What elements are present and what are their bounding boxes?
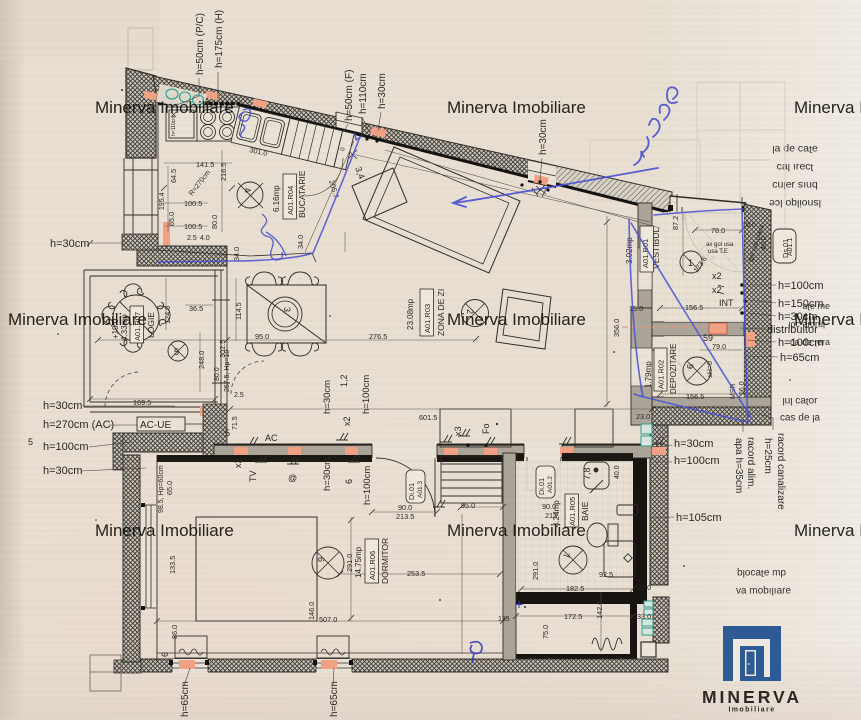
svg-text:23.0: 23.0 (636, 412, 650, 421)
svg-text:Minerva Imobiliare: Minerva Imobiliare (794, 98, 861, 117)
svg-text:169.5: 169.5 (133, 398, 151, 407)
svg-text:601.5: 601.5 (419, 413, 437, 422)
svg-text:6: 6 (344, 479, 354, 484)
svg-text:216.5: 216.5 (219, 163, 228, 181)
svg-text:BAIE: BAIE (580, 501, 590, 521)
svg-text:h=30cm: h=30cm (43, 400, 82, 412)
svg-text:65.0: 65.0 (165, 481, 174, 495)
svg-text:Minerva Imobiliare: Minerva Imobiliare (447, 310, 586, 329)
svg-text:A01.R02: A01.R02 (657, 360, 666, 389)
svg-text:3: 3 (282, 307, 292, 312)
svg-text:h=50cm (P/C): h=50cm (P/C) (195, 13, 206, 75)
svg-text:Minerva Imobiliare: Minerva Imobiliare (794, 521, 861, 540)
svg-text:ax gol usa: ax gol usa (706, 242, 734, 248)
svg-text:A01.2: A01.2 (547, 476, 554, 493)
svg-text:lsnoilqo lce: lsnoilqo lce (769, 197, 821, 209)
svg-text:usa T.E: usa T.E (708, 249, 728, 255)
svg-text:2.5: 2.5 (187, 235, 197, 242)
svg-text:6: 6 (160, 652, 170, 657)
svg-text:Minerva Imobiliare: Minerva Imobiliare (794, 310, 861, 329)
svg-text:5: 5 (28, 437, 33, 447)
svg-text:h=30cm: h=30cm (322, 457, 333, 491)
svg-text:MINERVA: MINERVA (702, 687, 802, 707)
svg-text:BUCATARIE: BUCATARIE (297, 170, 307, 218)
svg-text:Minerva Imobiliare: Minerva Imobiliare (95, 521, 234, 540)
svg-text:racord canalizare: racord canalizare (775, 433, 786, 510)
svg-text:95.0: 95.0 (255, 332, 269, 341)
svg-text:x3: x3 (453, 426, 463, 436)
svg-text:4.0: 4.0 (200, 235, 210, 242)
svg-text:Di.01: Di.01 (537, 478, 546, 495)
svg-text:15.0: 15.0 (629, 304, 643, 313)
svg-text:racord alim.: racord alim. (745, 437, 756, 489)
svg-text:A01.R04: A01.R04 (286, 186, 295, 215)
svg-text:x2: x2 (342, 416, 352, 426)
svg-text:34.0: 34.0 (232, 247, 241, 261)
svg-text:Imobiliare: Imobiliare (728, 707, 775, 714)
svg-text:TV: TV (248, 470, 258, 482)
svg-text:h=110cm: h=110cm (358, 73, 369, 114)
svg-text:276.5: 276.5 (369, 332, 387, 341)
svg-text:A01.R03: A01.R03 (423, 304, 432, 333)
svg-text:h=105cm: h=105cm (676, 512, 722, 524)
svg-text:LOGIE: LOGIE (146, 312, 156, 338)
svg-text:507.0: 507.0 (319, 615, 337, 624)
svg-text:36.5: 36.5 (189, 304, 203, 313)
svg-text:h=100cm: h=100cm (362, 466, 373, 505)
svg-text:6.16mp: 6.16mp (272, 185, 281, 212)
svg-text:ZONA DE ZI: ZONA DE ZI (436, 289, 446, 336)
svg-text:291.0: 291.0 (345, 554, 354, 572)
svg-text:AC: AC (265, 433, 278, 443)
svg-text:7,8: 7,8 (582, 467, 592, 480)
svg-text:h=100cm: h=100cm (778, 337, 824, 349)
svg-text:182.5: 182.5 (566, 584, 584, 593)
svg-text:apa h=35cm: apa h=35cm (733, 438, 744, 493)
svg-text:90.0: 90.0 (398, 503, 412, 512)
svg-text:h=175cm (H): h=175cm (H) (214, 10, 225, 68)
svg-text:100.5: 100.5 (184, 199, 202, 208)
svg-text:142.0: 142.0 (595, 601, 604, 619)
svg-text:146.0: 146.0 (307, 602, 316, 620)
svg-text:Minerva Imobiliare: Minerva Imobiliare (447, 98, 586, 117)
svg-text:71.5: 71.5 (232, 416, 239, 430)
svg-text:248.0: 248.0 (197, 351, 206, 369)
svg-text:95.0: 95.0 (461, 501, 475, 510)
svg-text:A01.R06: A01.R06 (368, 551, 377, 580)
svg-text:86.0: 86.0 (170, 625, 179, 639)
svg-text:79.0: 79.0 (712, 342, 726, 351)
svg-text:ɹoʇɐɔ lnl: ɹoʇɐɔ lnl (782, 395, 817, 406)
svg-text:h=110cm: h=110cm (171, 116, 177, 136)
svg-text:7: 7 (561, 553, 571, 558)
svg-text:h=270cm (AC): h=270cm (AC) (43, 419, 114, 431)
svg-text:65.0: 65.0 (167, 212, 176, 226)
svg-text:Minerva Imobiliare: Minerva Imobiliare (8, 310, 147, 329)
svg-text:1: 1 (688, 258, 693, 268)
svg-text:Minerva Imobiliare: Minerva Imobiliare (447, 521, 586, 540)
svg-text:33.0: 33.0 (637, 612, 651, 621)
svg-text:80.0: 80.0 (214, 367, 221, 381)
svg-text:75.0: 75.0 (541, 625, 550, 639)
svg-text:40.0: 40.0 (761, 236, 768, 250)
svg-text:Di.01: Di.01 (407, 483, 416, 500)
svg-text:80.0: 80.0 (210, 215, 219, 229)
svg-text:h=65cm: h=65cm (780, 352, 819, 364)
svg-text:ɐl ǝp sɐɔ: ɐl ǝp sɐɔ (780, 412, 820, 423)
svg-text:92.5: 92.5 (599, 570, 613, 579)
svg-text:114.5: 114.5 (234, 302, 243, 320)
svg-text:9: 9 (685, 364, 695, 369)
svg-text:1,2: 1,2 (339, 374, 349, 387)
svg-text:Fo: Fo (481, 423, 491, 434)
svg-text:141.5: 141.5 (196, 160, 214, 169)
svg-text:A01.1: A01.1 (787, 238, 794, 256)
svg-text:h=30cm: h=30cm (322, 380, 333, 414)
svg-text:156.5: 156.5 (686, 392, 704, 401)
svg-text:Minerva Imobiliare: Minerva Imobiliare (95, 98, 234, 117)
svg-text:h=50cm (F): h=50cm (F) (344, 70, 355, 121)
svg-text:291.0: 291.0 (531, 562, 540, 580)
svg-text:DEPOZITARE: DEPOZITARE (669, 343, 678, 394)
svg-text:h=100cm: h=100cm (361, 375, 372, 414)
svg-text:40.0: 40.0 (614, 465, 621, 479)
svg-text:x2: x2 (233, 458, 243, 468)
svg-text:133.5: 133.5 (168, 556, 177, 574)
svg-text:172.5: 172.5 (564, 612, 582, 621)
svg-text:56.0: 56.0 (739, 381, 746, 395)
